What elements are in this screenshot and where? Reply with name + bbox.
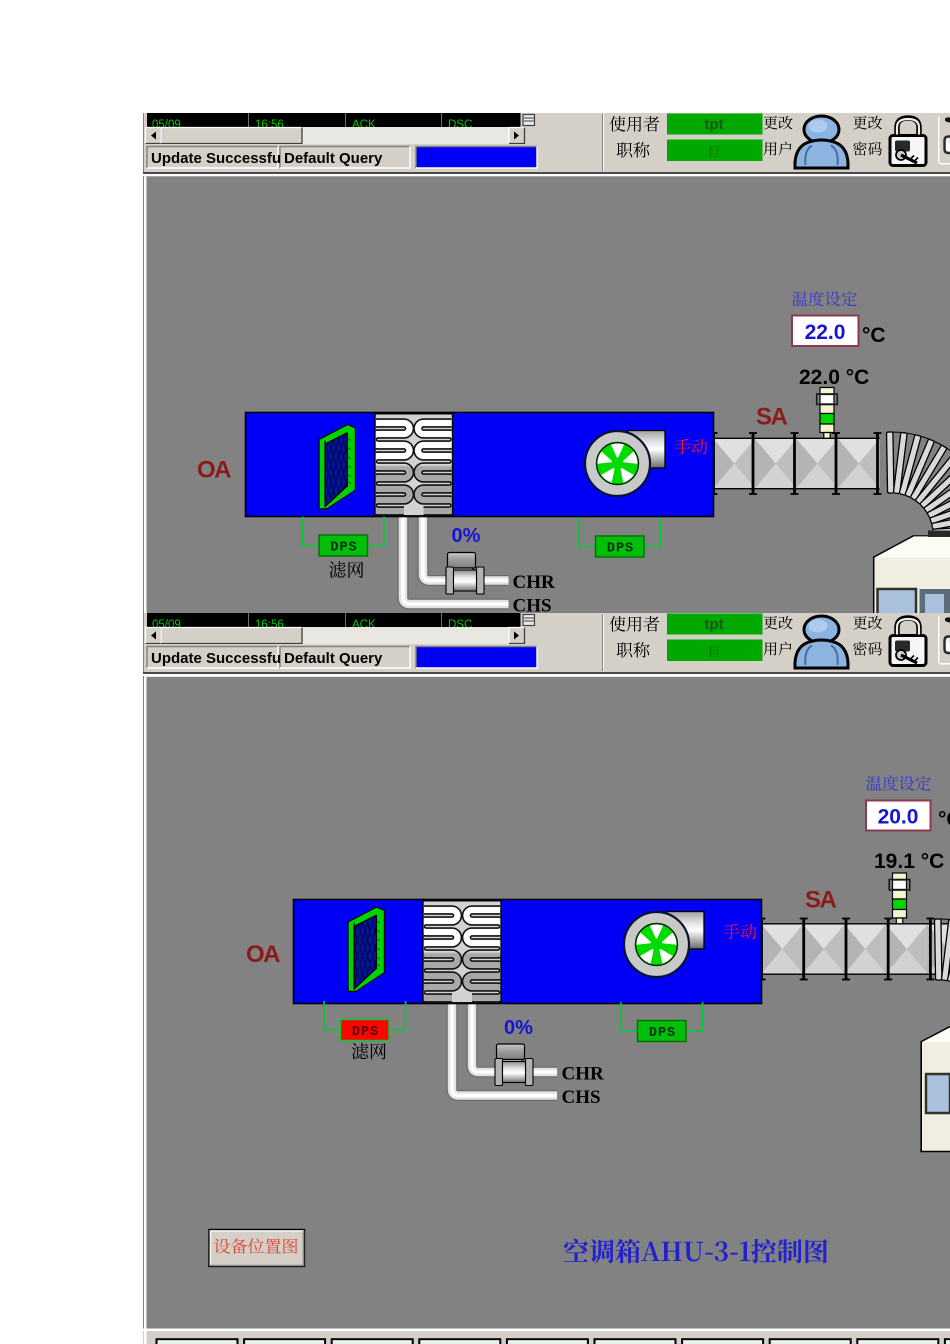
svg-text:0%: 0% [504, 1017, 533, 1039]
svg-text:OA: OA [246, 941, 280, 968]
svg-text:0%: 0% [452, 525, 481, 547]
svg-text:°C: °C [862, 324, 886, 347]
svg-text:°C: °C [938, 808, 950, 831]
svg-text:OA: OA [197, 457, 231, 484]
svg-text:CHR: CHR [562, 1064, 605, 1085]
svg-text:22.0 °C: 22.0 °C [799, 366, 869, 389]
svg-text:SA: SA [756, 404, 788, 431]
svg-text:CHS: CHS [562, 1087, 601, 1108]
svg-text:CHR: CHR [513, 572, 556, 593]
svg-text:22.0: 22.0 [805, 321, 846, 344]
svg-text:19.1 °C: 19.1 °C [874, 850, 944, 873]
svg-text:20.0: 20.0 [878, 806, 919, 829]
svg-text:SA: SA [805, 887, 837, 914]
